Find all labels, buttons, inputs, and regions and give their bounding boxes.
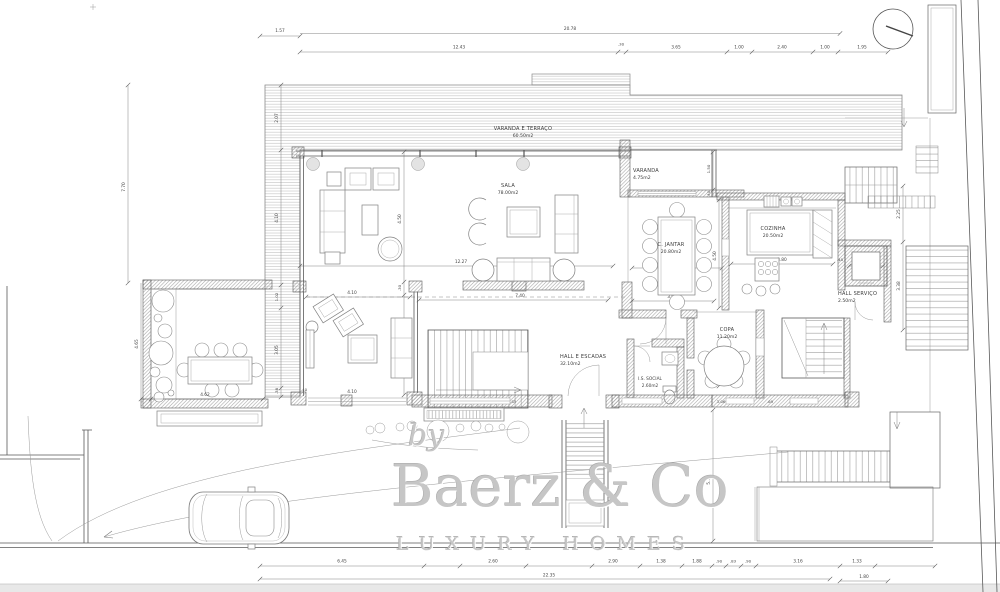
dim: 1.02: [274, 292, 279, 301]
dim: 1.33: [852, 559, 862, 565]
floor-plan-drawing: VARANDA E TERRAÇO 60.50m2 1.57 20.78 12.…: [0, 0, 1000, 592]
dim: 7.40: [515, 293, 525, 299]
dim: 4.65: [134, 339, 140, 349]
dim: 12.27: [455, 259, 468, 265]
room-label: VARANDA E TERRAÇO: [494, 126, 552, 132]
entrance-steps: [366, 408, 608, 528]
room-area: 78.00m2: [498, 190, 519, 196]
dim: 1.00: [734, 45, 744, 51]
dim: 7.70: [121, 182, 127, 192]
room-label: COPA: [720, 327, 735, 333]
north-indicator: [873, 9, 913, 49]
dim: 3.65: [671, 45, 681, 51]
dim: 4.50: [397, 214, 403, 224]
dim: 5.15: [706, 475, 712, 485]
tv-furniture: [306, 294, 412, 378]
dim: 1.80: [859, 574, 869, 580]
dim: 3.05: [274, 345, 280, 355]
dim: 1.38: [656, 559, 666, 565]
dim: 1.57: [275, 28, 285, 34]
dim: 4.50: [712, 251, 718, 261]
room-label: SALA: [501, 183, 515, 189]
dim: 3.16: [793, 559, 803, 565]
dim: .83: [730, 559, 737, 564]
room-label: HALL E ESCADAS: [560, 354, 606, 360]
dim: 4.10: [274, 213, 280, 223]
room-label: COZINHA: [761, 226, 786, 232]
dim: 4.10: [347, 290, 357, 296]
driveway: [28, 416, 788, 541]
dim: 4.62: [200, 392, 210, 398]
dim: .30: [618, 42, 625, 47]
pebbles: [366, 420, 529, 443]
kitchen: COZINHA 20.50m2: [717, 193, 845, 296]
lower-right-terrace: [755, 412, 940, 541]
dim: 2.25: [896, 209, 902, 219]
wc-social: I.S. SOCIAL 2.60m2: [627, 339, 684, 404]
dim: .38: [274, 387, 279, 394]
dim: 12.43: [453, 45, 466, 51]
room-area: 4.75m2: [633, 175, 651, 181]
room-label: C. JANTAR: [657, 242, 684, 248]
dining-set: [643, 203, 712, 310]
dim: 1.00: [820, 45, 830, 51]
room-area: 20.80m2: [661, 249, 682, 255]
room-area: 60.50m2: [513, 133, 534, 139]
car: [189, 487, 289, 549]
room-label: I.S. SOCIAL: [638, 376, 662, 382]
dim: 2.90: [608, 559, 618, 565]
service-stair: [782, 318, 850, 398]
room-area: 2.50m2: [838, 298, 856, 304]
dim: 20.78: [564, 26, 577, 32]
sala-furniture: [320, 168, 578, 281]
dim: 3.38: [896, 281, 902, 291]
room-area: 2.60m2: [642, 383, 659, 389]
ceiling-lights: [307, 158, 530, 171]
room-label: VARANDA: [633, 168, 659, 174]
dining-room: C. JANTAR 20.80m2: [619, 197, 729, 344]
terrace-left: [141, 280, 272, 426]
planter-bench: [157, 411, 262, 426]
floor-plan-page: VARANDA E TERRAÇO 60.50m2 1.57 20.78 12.…: [0, 0, 1000, 592]
dim: .90: [716, 559, 723, 564]
room-area: 11.20m2: [717, 334, 738, 340]
dim: 1.50: [706, 164, 711, 173]
room-label: HALL SERVIÇO: [838, 291, 877, 297]
room-area: 32.10m2: [560, 361, 581, 367]
service-hall: HALL SERVIÇO 2.50m2: [838, 240, 891, 322]
room-area: 20.50m2: [763, 233, 784, 239]
dim: 4.10: [347, 389, 357, 395]
dim: .30: [397, 284, 402, 291]
dim: 2.40: [777, 45, 787, 51]
dim: 6.45: [337, 559, 347, 565]
dim: 22.35: [543, 573, 556, 579]
dim: 2.60: [488, 559, 498, 565]
dim: 2.07: [274, 113, 280, 123]
dim: 1.88: [692, 559, 702, 565]
dim: .40: [301, 387, 308, 392]
dim: 1.95: [857, 45, 867, 51]
tv-room: [306, 281, 422, 406]
dim: .90: [745, 559, 752, 564]
copa: COPA 11.20m2: [687, 310, 764, 398]
